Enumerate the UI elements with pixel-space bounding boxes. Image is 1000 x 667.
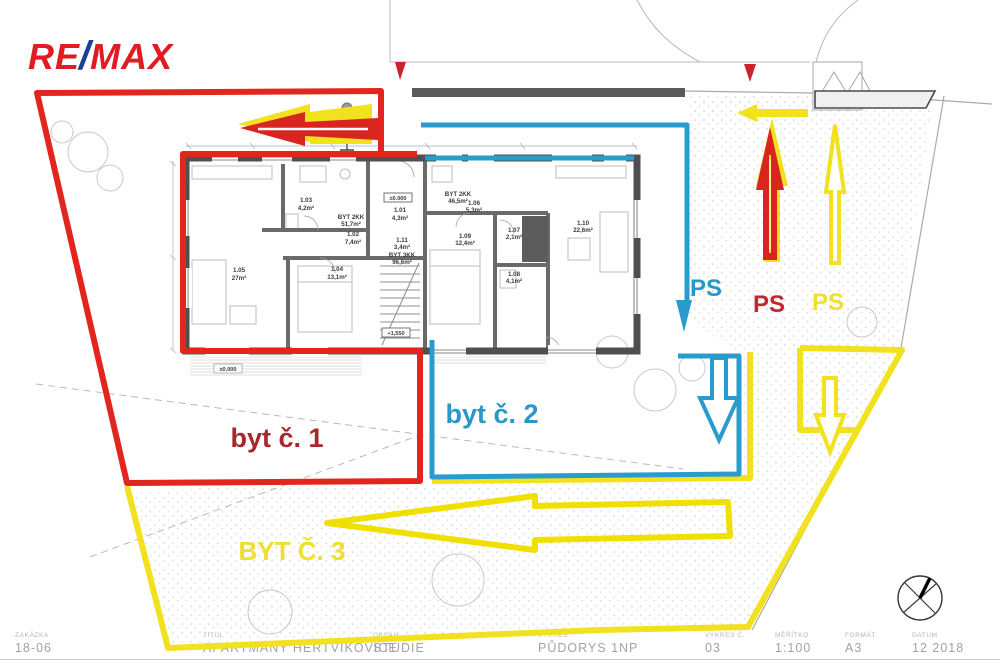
parking-label-blue: PS — [690, 275, 722, 302]
level-0: ±0.000 — [389, 196, 406, 202]
room-label: 1.10 — [577, 220, 590, 227]
blue-down-arrow — [700, 358, 738, 440]
room-label: 1.03 — [300, 197, 313, 204]
room-label: 1.05 — [233, 267, 246, 274]
room-label: 1.06 — [468, 200, 481, 207]
room-area: 12,4m² — [455, 240, 475, 247]
room-label: 1.11 — [396, 237, 408, 244]
apartment2-label: byt č. 2 — [445, 399, 538, 429]
apartment-tag-area: 51,7m² — [341, 221, 361, 228]
room-label: 1.09 — [459, 233, 472, 240]
floorplan-sheet: RE/MAX ZAKÁZKA 18-06 TITUL APARTMÁNY HER… — [0, 0, 1000, 667]
red-marker-triangle-right — [744, 64, 756, 82]
retaining-wall-bar — [412, 88, 685, 97]
apartment-tag: BYT 3KK — [389, 252, 416, 259]
apartment-tag-area: 96,6m² — [392, 259, 412, 266]
room-area: 7,4m² — [345, 239, 361, 246]
room-area: 4,3m² — [392, 215, 408, 222]
room-area: 4,1m² — [506, 278, 522, 285]
room-label: 1.07 — [508, 227, 521, 234]
apartment-tag: BYT 2KK — [338, 214, 365, 221]
apartment3-label: BYT Č. 3 — [239, 536, 346, 566]
room-area: 22,6m² — [573, 227, 593, 234]
blue-boundary-arrowhead — [676, 300, 692, 332]
room-area: 13,1m² — [327, 274, 347, 281]
parking-label-red: PS — [753, 291, 785, 318]
north-compass-icon — [898, 576, 942, 620]
level-0-terrace: ±0.000 — [219, 367, 236, 373]
apartment-tag-area: 46,5m² — [448, 198, 468, 205]
room-area: 4,2m² — [298, 205, 314, 212]
terrace-decking — [190, 354, 546, 375]
parking-label-yellow: PS — [812, 289, 844, 316]
room-label: 1.02 — [347, 231, 360, 238]
room-label: 1.01 — [394, 207, 407, 214]
red-marker-triangle-left — [395, 62, 406, 80]
site-plan-drawing: ±0.000 +1,550 ±0.000 1.01 4,3m² 1.02 7,4… — [0, 0, 1000, 667]
apartment1-red-outline — [37, 91, 420, 483]
room-area: 5,3m² — [466, 207, 482, 214]
room-label: 1.04 — [331, 266, 344, 273]
level-1550: +1,550 — [387, 331, 404, 337]
service-shaft — [522, 216, 548, 262]
apartment1-label: byt č. 1 — [230, 423, 323, 453]
room-area: 2,1m² — [506, 234, 522, 241]
room-label: 1.08 — [508, 271, 521, 278]
apartment-tag: BYT 2KK — [445, 191, 472, 198]
room-area: 27m² — [232, 275, 246, 282]
room-area: 3,4m² — [394, 244, 410, 251]
